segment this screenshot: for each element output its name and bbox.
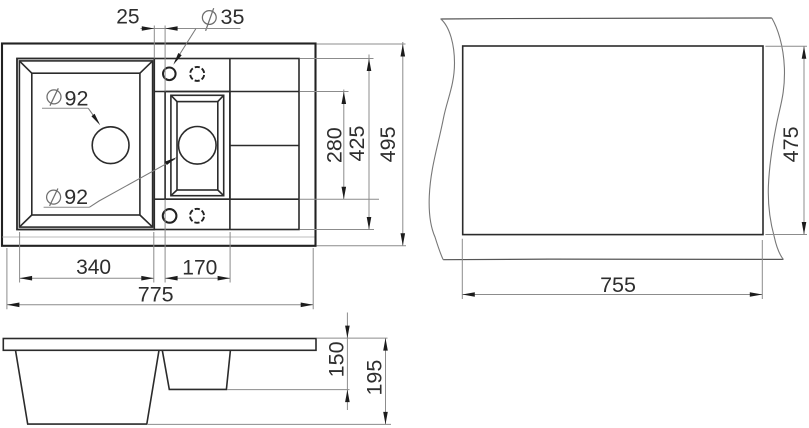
svg-text:150: 150 bbox=[324, 341, 348, 377]
svg-text:755: 755 bbox=[600, 273, 636, 297]
svg-text:195: 195 bbox=[362, 360, 386, 396]
svg-text:425: 425 bbox=[345, 126, 369, 162]
svg-text:475: 475 bbox=[779, 126, 803, 162]
svg-text:170: 170 bbox=[182, 257, 217, 280]
svg-text:35: 35 bbox=[221, 5, 245, 29]
svg-text:495: 495 bbox=[376, 126, 400, 162]
svg-text:280: 280 bbox=[323, 127, 347, 163]
svg-text:340: 340 bbox=[76, 256, 111, 279]
svg-text:92: 92 bbox=[65, 86, 89, 110]
svg-text:775: 775 bbox=[138, 282, 174, 306]
svg-text:25: 25 bbox=[116, 6, 139, 29]
svg-text:92: 92 bbox=[64, 185, 88, 209]
